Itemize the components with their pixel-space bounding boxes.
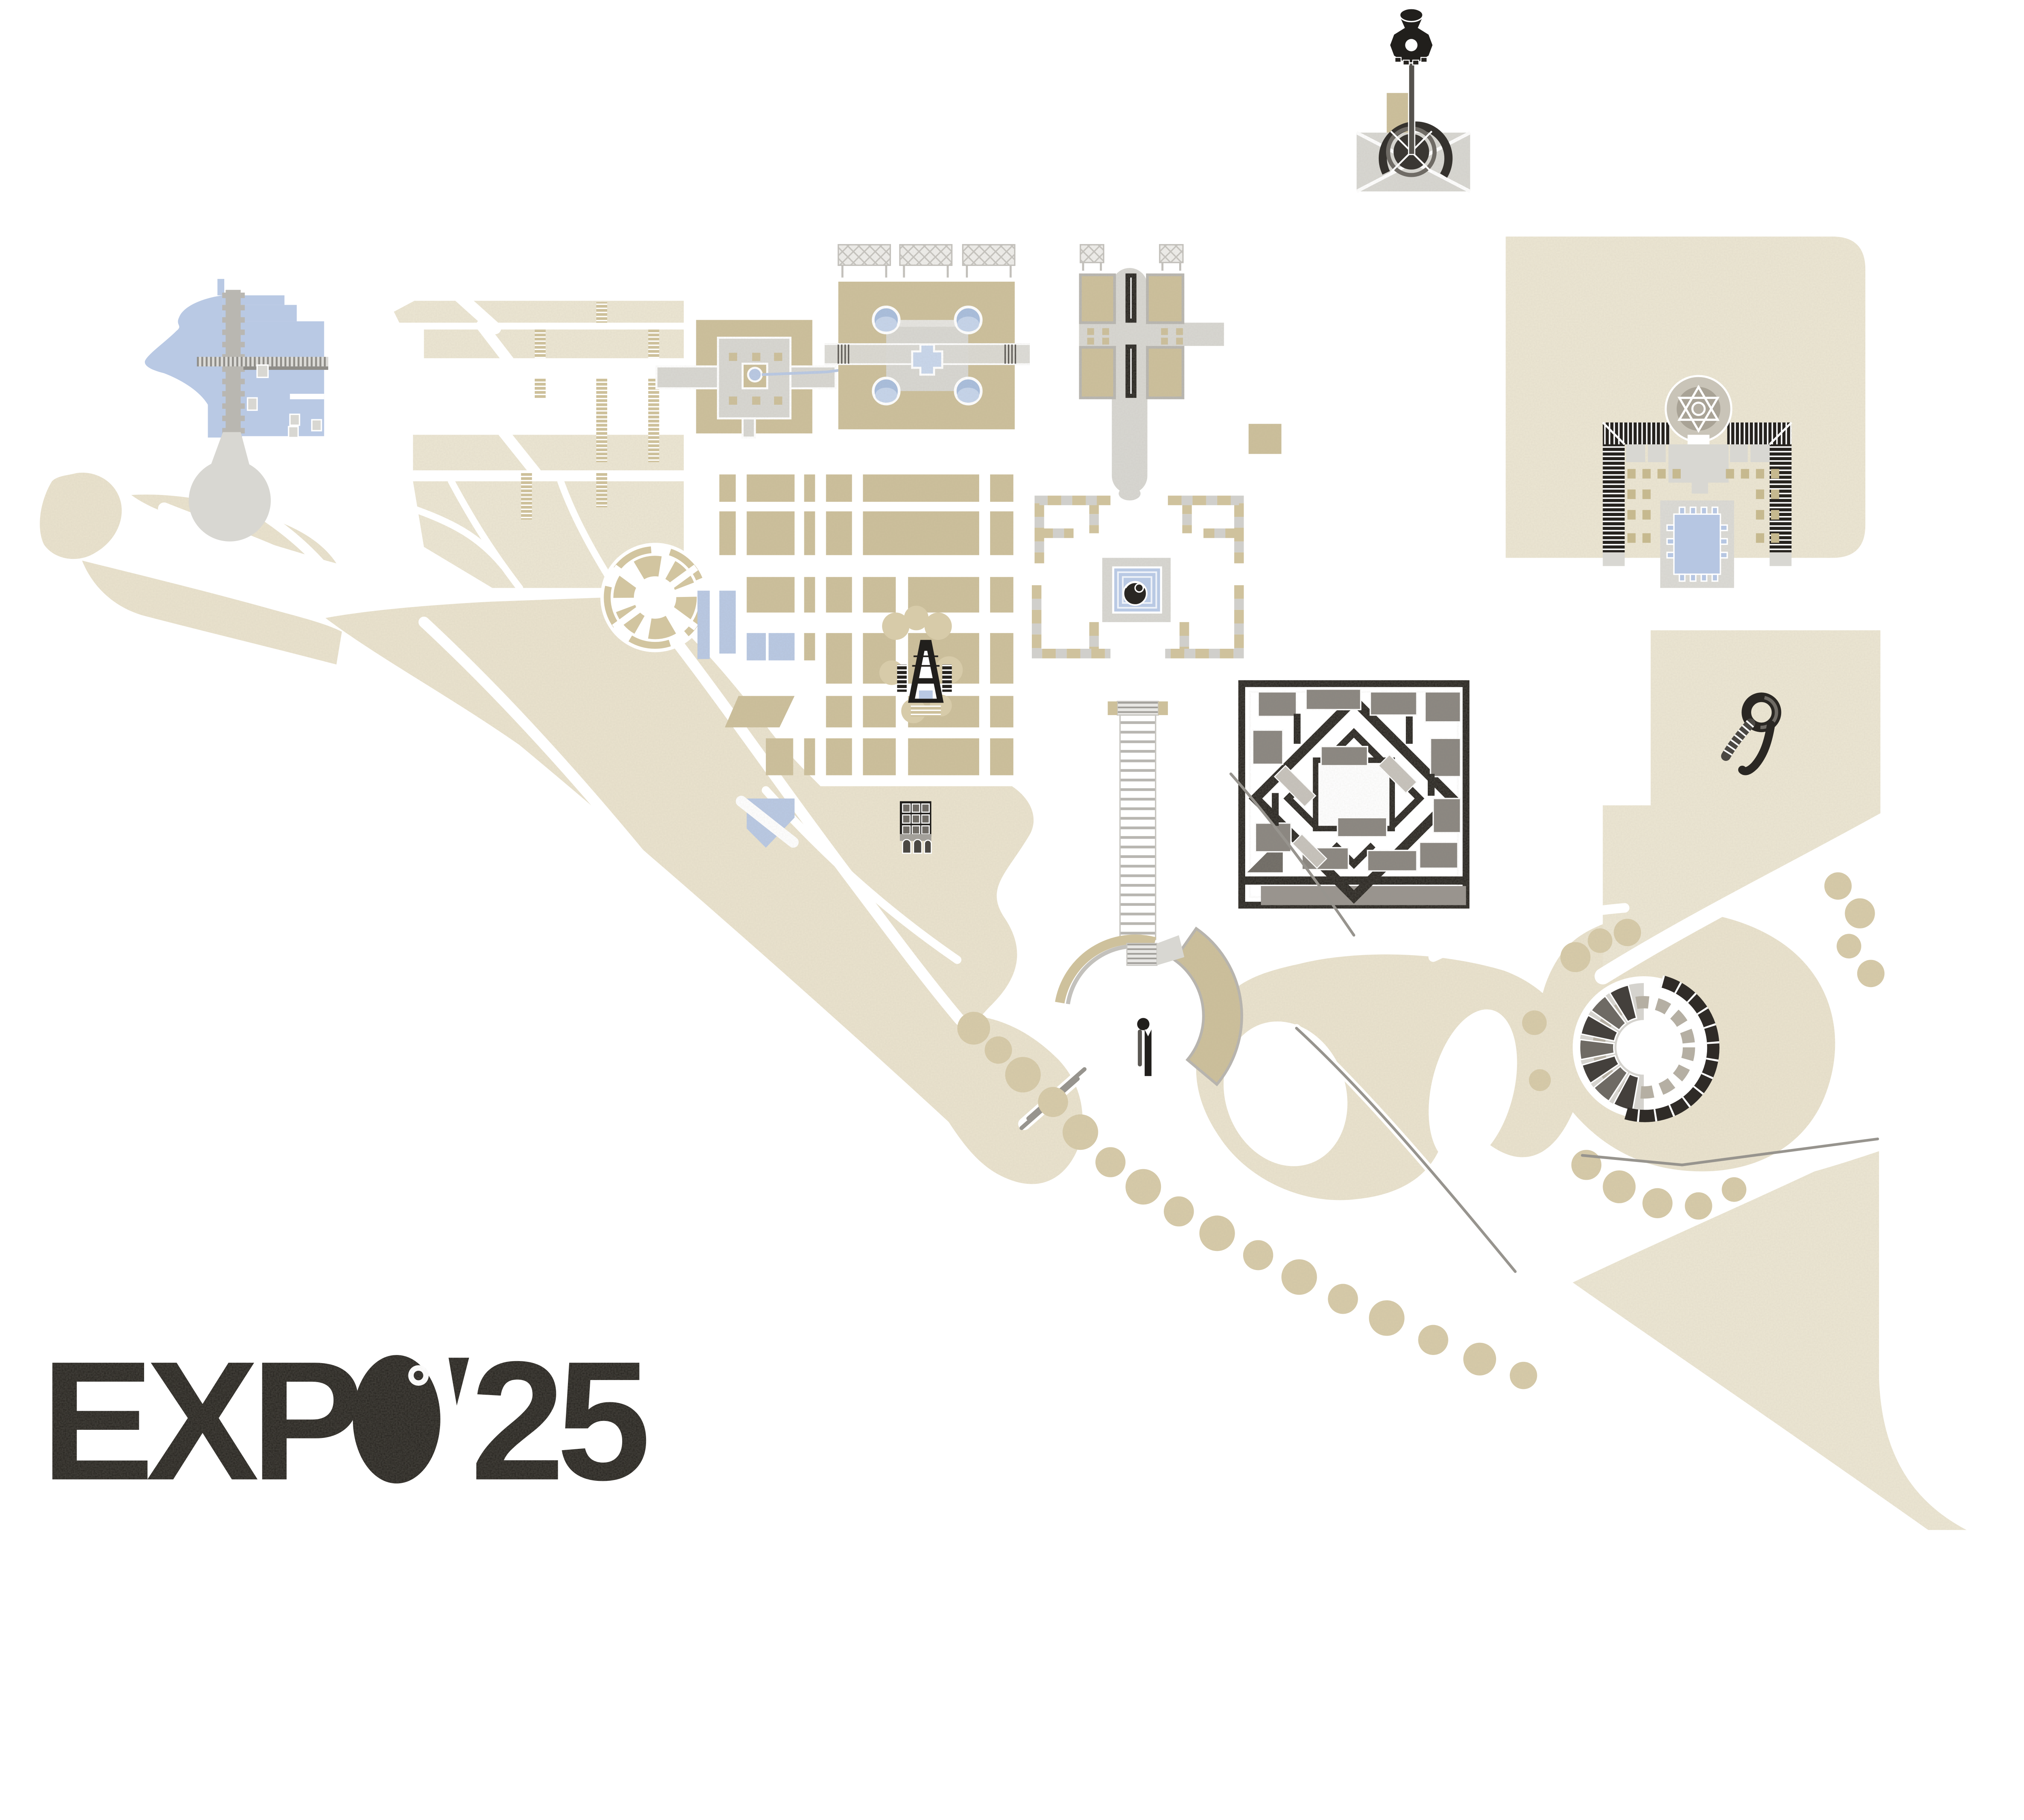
- logo-o-icon: [353, 1355, 440, 1484]
- terrain-left-hook: [40, 473, 121, 559]
- truss-canopy: [1080, 245, 1103, 263]
- truss-canopy: [1160, 245, 1183, 263]
- tower-deck: [1389, 28, 1433, 65]
- stair-ramp: [535, 329, 546, 358]
- amphitheater: [1573, 976, 1715, 1118]
- quadrant: [1147, 275, 1183, 323]
- grand-stair: [1108, 701, 1168, 715]
- pool: [955, 378, 981, 404]
- truss-canopy: [838, 245, 890, 265]
- truss-canopy: [900, 245, 952, 265]
- kiosk-arches: [903, 839, 931, 853]
- lake-basin: [242, 321, 324, 436]
- site-plan-canvas: EXP 25: [0, 0, 2024, 1537]
- expo-tower: [1356, 8, 1470, 191]
- truss-canopy: [963, 245, 1014, 265]
- logo: EXP 25: [41, 1326, 646, 1515]
- stair-ramp: [648, 377, 659, 462]
- stair-ramp: [648, 329, 659, 358]
- small-plot: [1248, 424, 1281, 454]
- roundabout-garden: [600, 543, 710, 652]
- crenellated-pool-court: [1660, 500, 1734, 588]
- terrain-right-block: [1603, 630, 1880, 973]
- platform: [312, 420, 321, 431]
- stair-ramp: [521, 473, 532, 520]
- spiral-fountain: [1123, 582, 1146, 605]
- expo-site-plan: EXP 25: [0, 0, 2024, 1537]
- platform: [257, 365, 268, 377]
- pavilion-four-pools: [825, 245, 1030, 429]
- harbor-plaza: [189, 432, 271, 542]
- stair-ramp: [596, 377, 607, 462]
- pool: [955, 307, 981, 333]
- platform: [290, 414, 300, 425]
- pool: [873, 378, 899, 404]
- truss-frames: [1080, 245, 1183, 271]
- arched-kiosk: [900, 801, 931, 853]
- platform: [289, 427, 298, 437]
- quadrant: [1080, 275, 1114, 323]
- platform: [247, 398, 257, 410]
- axis-walkway: [1120, 715, 1156, 939]
- quadrant: [1147, 347, 1183, 398]
- cross-plaza-pavilion: [1079, 245, 1224, 501]
- tower-crown: [1400, 8, 1423, 30]
- terrain-left-swoosh: [82, 561, 342, 665]
- truss-canopies: [838, 245, 1015, 278]
- plaza-circle: [189, 459, 271, 542]
- logo-apostrophe: [449, 1358, 469, 1406]
- stair-ramp: [535, 377, 546, 399]
- fountain-pool: [748, 368, 762, 382]
- maze-pavilion: [1242, 684, 1466, 905]
- quadrant: [1080, 347, 1114, 398]
- fountain-plaza: [1037, 500, 1239, 715]
- logo-text-25: 25: [470, 1326, 646, 1515]
- stair-ramp: [596, 473, 607, 507]
- stair-ramp: [596, 302, 607, 323]
- pool: [873, 307, 899, 333]
- walkway-ladder: [1120, 715, 1156, 939]
- cross-arm-plaza: [1079, 323, 1224, 346]
- logo-text-exp: EXP: [41, 1326, 359, 1515]
- jetty-edge: [243, 366, 328, 370]
